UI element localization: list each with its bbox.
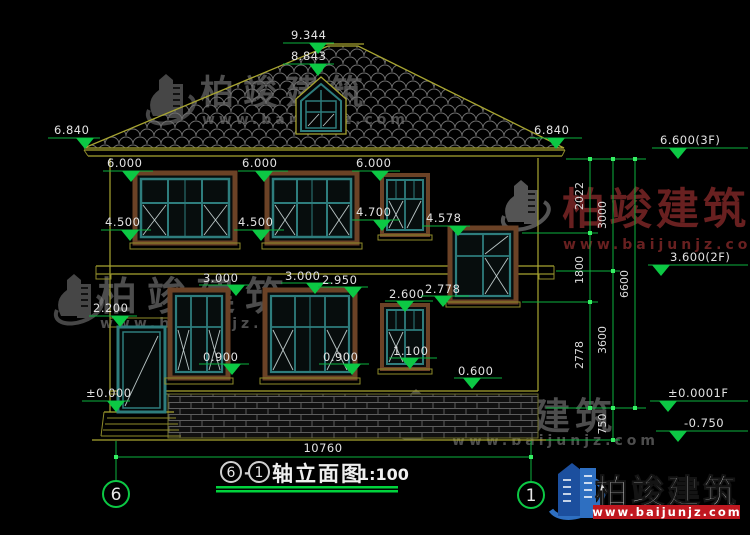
svg-text:4.578: 4.578 xyxy=(426,211,461,225)
window-1f-middle xyxy=(260,290,360,384)
dim-total-width: 10760 xyxy=(303,441,342,455)
title-scale: 1:100 xyxy=(358,465,409,484)
svg-text:0.900: 0.900 xyxy=(323,350,358,364)
level-marker-floor3: 6.600(3F) xyxy=(652,133,748,159)
dim-seg-3600: 3600 xyxy=(596,326,609,354)
drawing-title: 6 - 1 轴立面图 1:100 xyxy=(216,462,409,493)
svg-text:-0.750: -0.750 xyxy=(684,416,724,430)
svg-text:2.950: 2.950 xyxy=(322,273,357,287)
dim-seg-6600: 6600 xyxy=(618,270,631,298)
svg-text:4.500: 4.500 xyxy=(105,215,140,229)
svg-text:3.000: 3.000 xyxy=(203,271,238,285)
svg-text:3.000: 3.000 xyxy=(285,269,320,283)
level-marker-plinth: 0.600 xyxy=(454,364,502,389)
svg-text:0.600: 0.600 xyxy=(458,364,493,378)
logo-url: www.baijunjz.com xyxy=(592,505,741,519)
watermark-right: 柏竣建筑 www.baijunjz.com xyxy=(503,180,750,253)
window-2f-middle xyxy=(262,173,362,249)
svg-text:0.900: 0.900 xyxy=(203,350,238,364)
window-2f-left xyxy=(130,173,240,249)
window-1f-left xyxy=(165,290,233,384)
svg-text:6.000: 6.000 xyxy=(107,156,142,170)
dim-seg-2778: 2778 xyxy=(573,341,586,369)
level-marker-ground-1f: ±0.0001F xyxy=(650,386,748,412)
svg-text:6: 6 xyxy=(111,485,122,505)
title-name: 轴立面图 xyxy=(272,462,364,486)
title-axis-to: 1 xyxy=(255,465,264,481)
svg-text:9.344: 9.344 xyxy=(291,28,326,42)
brand-logo: 柏竣建筑 www.baijunjz.com xyxy=(544,463,742,524)
watermark-logo-icon xyxy=(503,180,549,230)
svg-text:6.600(3F): 6.600(3F) xyxy=(660,133,720,147)
dim-seg-750: 750 xyxy=(596,414,609,435)
level-marker-floor2: 3.600(2F) xyxy=(648,250,748,276)
svg-text:4.500: 4.500 xyxy=(238,215,273,229)
dim-seg-3000: 3000 xyxy=(596,201,609,229)
svg-text:8.843: 8.843 xyxy=(291,49,326,63)
grid-bubble-right: 1 xyxy=(518,482,544,508)
grid-bubble-left: 6 xyxy=(103,481,129,507)
svg-text:6.000: 6.000 xyxy=(242,156,277,170)
svg-text:6.840: 6.840 xyxy=(54,123,89,137)
svg-text:6.840: 6.840 xyxy=(534,123,569,137)
svg-text:±0.000: ±0.000 xyxy=(86,386,132,400)
level-marker-site: -0.750 xyxy=(656,416,748,442)
svg-text:4.700: 4.700 xyxy=(356,205,391,219)
svg-text:1: 1 xyxy=(526,486,537,506)
svg-text:2.600: 2.600 xyxy=(389,287,424,301)
title-axis-from: 6 xyxy=(227,465,236,481)
svg-text:±0.0001F: ±0.0001F xyxy=(668,386,729,400)
svg-text:2.778: 2.778 xyxy=(425,282,460,296)
svg-text:1.100: 1.100 xyxy=(393,344,428,358)
svg-text:2.200: 2.200 xyxy=(93,301,128,315)
svg-text:3.600(2F): 3.600(2F) xyxy=(670,250,730,264)
window-1f-small xyxy=(378,305,432,374)
cad-elevation-drawing: 柏竣建筑 www.baijunjz.com 柏竣建筑 www.baijunjz.… xyxy=(0,0,750,535)
dim-seg-2022: 2022 xyxy=(573,182,586,210)
dim-seg-1800: 1800 xyxy=(573,256,586,284)
svg-text:6.000: 6.000 xyxy=(356,156,391,170)
